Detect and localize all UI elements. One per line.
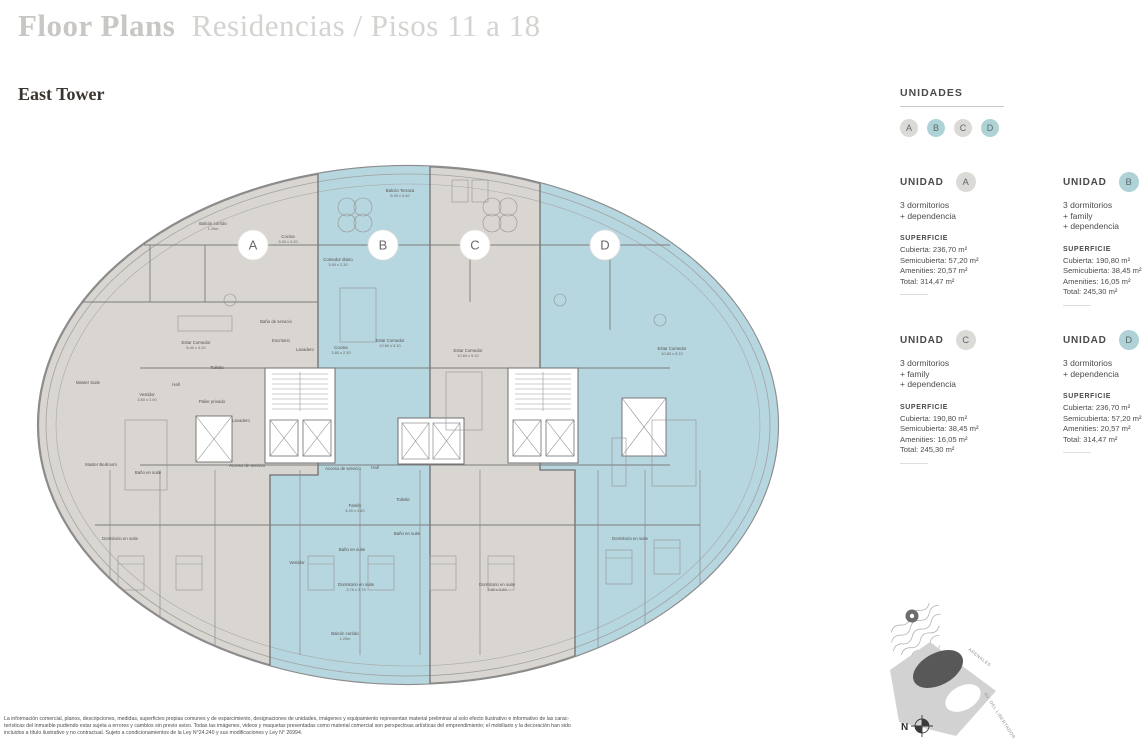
room-label: Toilette	[210, 365, 224, 370]
legend-badge-b: B	[927, 119, 945, 137]
unit-c-superficie-title: SUPERFICIE	[900, 404, 1050, 411]
unit-c-badge: C	[956, 330, 976, 350]
room-label: Dormitorio en suite	[102, 536, 139, 541]
legend-badge-d: D	[981, 119, 999, 137]
legend-badge-a: A	[900, 119, 918, 137]
room-label: Acceso de servicio	[229, 463, 265, 468]
room-label: Estar Comedor10.60 x 5.10	[658, 346, 687, 356]
unit-c-title: UNIDAD	[900, 335, 944, 346]
floor-plan-page: { "header": { "title_bold": "Floor Plans…	[0, 0, 1148, 746]
legend-divider	[900, 106, 1004, 107]
unit-b-badge: B	[1119, 172, 1139, 192]
unit-d-total: Total: 314,47 m²	[1063, 435, 1148, 446]
room-label: Baño en suite	[394, 531, 421, 536]
unit-c-desc-line: + family	[900, 369, 1050, 380]
room-label: Vestidor	[289, 560, 305, 565]
unit-d-semicubierta: Semicubierta: 57,20 m²	[1063, 414, 1148, 425]
unit-b-total: Total: 245,30 m²	[1063, 287, 1148, 298]
unit-b-title: UNIDAD	[1063, 177, 1107, 188]
unit-d-rule	[1063, 452, 1091, 453]
elevator-bank-center	[398, 418, 464, 464]
plan-unit-badge-letter: B	[379, 238, 388, 253]
unit-c-desc-line: 3 dormitorios	[900, 358, 1050, 369]
unit-c-total: Total: 245,30 m²	[900, 445, 1050, 456]
room-label: Escritorio	[272, 338, 291, 343]
unit-b-desc-line: 3 dormitorios	[1063, 200, 1148, 211]
location-minimap: ARENALES AV. DEL LIBERTADOR N	[882, 597, 1017, 739]
unit-a-desc-line: 3 dormitorios	[900, 200, 1050, 211]
unit-b-rule	[1063, 305, 1091, 306]
unit-d-title: UNIDAD	[1063, 335, 1107, 346]
unit-b-desc-line: + family	[1063, 211, 1148, 222]
legend-title: UNIDADES	[900, 87, 963, 99]
room-label: Estar Comedor10.60 x 5.10	[376, 338, 405, 348]
legend-badge-c: C	[954, 119, 972, 137]
private-lift-d	[622, 398, 666, 456]
disclaimer-line: La información comercial, planos, descri…	[4, 716, 684, 723]
unit-d-superficie-title: SUPERFICIE	[1063, 393, 1148, 400]
room-label: Vestidor3.60 x 2.00	[137, 392, 157, 402]
unit-info-a: UNIDAD A 3 dormitorios + dependencia SUP…	[900, 172, 1050, 295]
unit-a-semicubierta: Semicubierta: 57,20 m²	[900, 256, 1050, 267]
unit-c-desc-line: + dependencia	[900, 379, 1050, 390]
plan-unit-badge-letter: C	[470, 238, 479, 253]
unit-b-amenities: Amenities: 16,05 m²	[1063, 277, 1148, 288]
unit-b-semicubierta: Semicubierta: 38,45 m²	[1063, 266, 1148, 277]
room-label: Estar Comedor10.60 x 5.10	[454, 348, 483, 358]
svg-text:N: N	[901, 722, 908, 733]
unit-d-cubierta: Cubierta: 236,70 m²	[1063, 403, 1148, 414]
room-label: Hall	[371, 465, 378, 470]
unit-d-desc-line: + dependencia	[1063, 369, 1148, 380]
unit-info-b: UNIDAD B 3 dormitorios + family + depend…	[1063, 172, 1148, 306]
room-label: Palier privado	[199, 399, 226, 404]
unit-a-superficie-title: SUPERFICIE	[900, 235, 1050, 242]
room-label: Baño de servicio	[260, 319, 292, 324]
room-label: Baño en suite	[135, 470, 162, 475]
unit-a-desc-line: + dependencia	[900, 211, 1050, 222]
core-right	[508, 368, 578, 463]
unit-a-total: Total: 314,47 m²	[900, 277, 1050, 288]
room-label: Lavadero	[296, 347, 315, 352]
room-label: Acceso de servicio	[325, 466, 361, 471]
room-label: Lavadero	[232, 418, 251, 423]
unit-c-cubierta: Cubierta: 190,80 m²	[900, 414, 1050, 425]
unit-c-amenities: Amenities: 16,05 m²	[900, 435, 1050, 446]
disclaimer-line: terísticas del inmueble pudiendo estar s…	[4, 723, 684, 730]
private-lift-a	[196, 416, 232, 462]
unit-d-amenities: Amenities: 20,57 m²	[1063, 424, 1148, 435]
room-label: Baño en suite	[339, 547, 366, 552]
room-label: Dormitorio en suite	[612, 536, 649, 541]
unit-a-amenities: Amenities: 20,57 m²	[900, 266, 1050, 277]
unit-info-c: UNIDAD C 3 dormitorios + family + depend…	[900, 330, 1050, 464]
unit-a-badge: A	[956, 172, 976, 192]
map-marker-dot-center	[910, 614, 914, 618]
unit-d-desc-line: 3 dormitorios	[1063, 358, 1148, 369]
legend-badges: A B C D	[900, 119, 999, 137]
plan-unit-badge-letter: D	[600, 238, 609, 253]
unit-c-rule	[900, 463, 928, 464]
unit-b-superficie-title: SUPERFICIE	[1063, 246, 1148, 253]
room-label: Master Suite	[76, 380, 101, 385]
room-label: Master Bedroom	[85, 462, 117, 467]
plan-unit-badge-letter: A	[249, 238, 258, 253]
unit-c-semicubierta: Semicubierta: 38,45 m²	[900, 424, 1050, 435]
unit-a-rule	[900, 294, 928, 295]
street-label-arenales: ARENALES	[967, 647, 992, 668]
unit-info-d: UNIDAD D 3 dormitorios + dependencia SUP…	[1063, 330, 1148, 453]
unit-a-cubierta: Cubierta: 236,70 m²	[900, 245, 1050, 256]
legal-disclaimer: La información comercial, planos, descri…	[4, 716, 684, 736]
unit-a-title: UNIDAD	[900, 177, 944, 188]
street-label-libertador: AV. DEL LIBERTADOR	[983, 692, 1017, 740]
room-label: Hall	[172, 382, 179, 387]
disclaimer-line: incluidos a título ilustrativo y no cont…	[4, 730, 684, 737]
room-label: Toilette	[396, 497, 410, 502]
core-left	[265, 368, 335, 463]
unit-b-desc-line: + dependencia	[1063, 221, 1148, 232]
unit-b-cubierta: Cubierta: 190,80 m²	[1063, 256, 1148, 267]
unit-d-badge: D	[1119, 330, 1139, 350]
